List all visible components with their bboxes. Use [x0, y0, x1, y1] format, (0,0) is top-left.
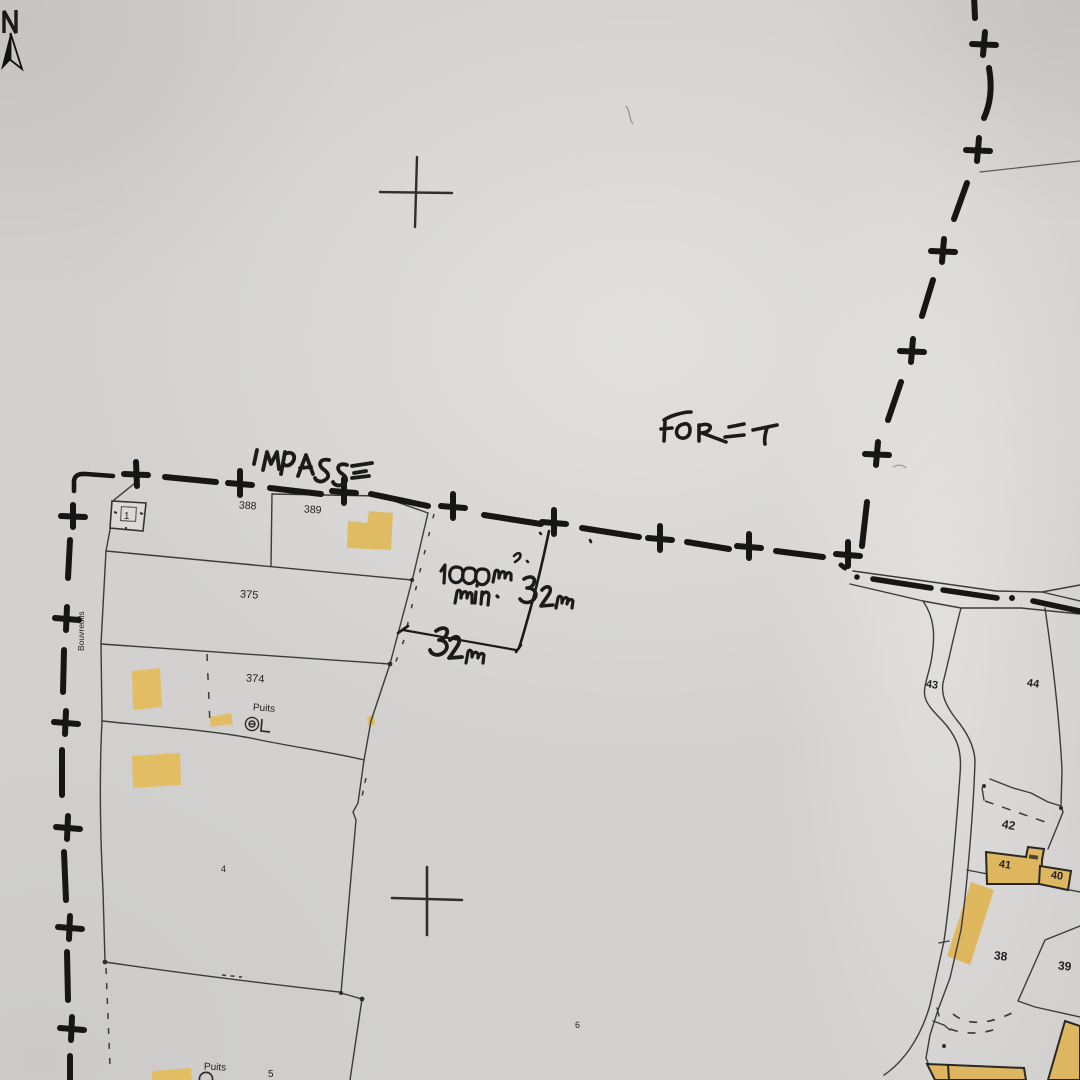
- svg-text:389: 389: [304, 503, 322, 516]
- svg-text:6: 6: [575, 1020, 580, 1030]
- svg-text:43: 43: [925, 678, 939, 692]
- svg-text:40: 40: [1050, 869, 1064, 883]
- svg-text:388: 388: [239, 499, 257, 512]
- svg-text:5: 5: [268, 1069, 274, 1080]
- svg-text:41: 41: [998, 858, 1012, 872]
- svg-text:39: 39: [1057, 958, 1072, 973]
- svg-text:374: 374: [246, 672, 265, 685]
- svg-text:42: 42: [1001, 817, 1017, 833]
- svg-text:375: 375: [240, 588, 259, 601]
- svg-text:Puits: Puits: [253, 702, 276, 715]
- svg-text:1: 1: [124, 511, 131, 522]
- svg-text:4: 4: [221, 864, 226, 874]
- svg-text:Puits: Puits: [204, 1061, 227, 1073]
- svg-text:38: 38: [993, 948, 1008, 963]
